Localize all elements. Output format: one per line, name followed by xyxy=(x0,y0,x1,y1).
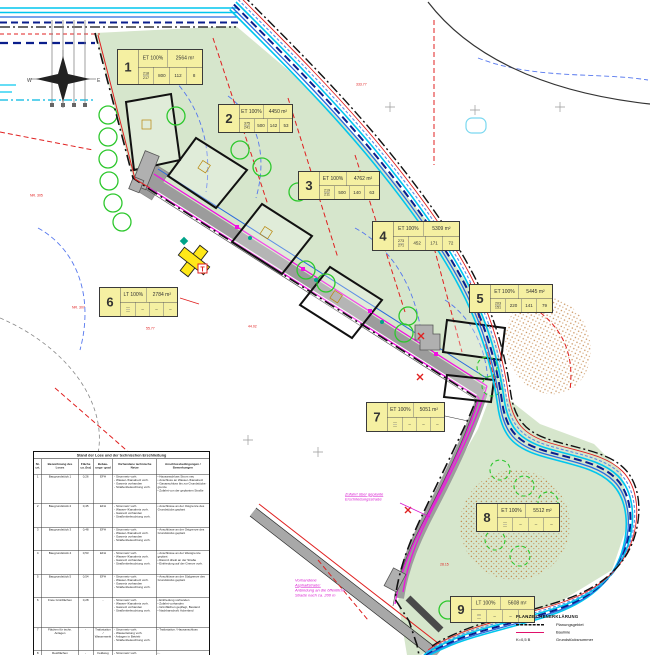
survey-cross-icon xyxy=(385,102,395,112)
transformer-marker: T xyxy=(198,264,207,274)
table-cell: Freie Grünflächen xyxy=(42,598,79,627)
table-cell: Stromnetz vorh.Wasser-/Kanalnetz vorh.Ga… xyxy=(113,475,156,504)
table-cell: Feldweg (unbefestigt) xyxy=(93,651,113,655)
table-note-line: Zufahrt von der geplanten Straße xyxy=(158,490,208,494)
legend-item: Baulinie xyxy=(516,629,650,637)
table-cell: Hausanschluss Strom neuAnschluss an Wass… xyxy=(157,475,209,504)
annotation-line: Erschließungsstraße xyxy=(345,497,440,502)
utility-marker-icon xyxy=(314,278,318,282)
table-cell: Stromnetz vorh.Wasser-/Kanalnetz vorh.Ga… xyxy=(113,598,156,627)
annotation-line: Straße nach ca. 200 m xyxy=(295,593,410,598)
table-cell: 6 xyxy=(34,598,42,627)
table-cell: 1 xyxy=(34,475,42,504)
table-desc-line: Straßenbeleuchtung vorh. xyxy=(114,539,155,543)
legend-item-label: Grundstücksnummer xyxy=(556,638,593,643)
table-note-line: Gasanschluss bis zur Grundstücks- grenze xyxy=(158,483,208,490)
compass-west-label: W xyxy=(27,78,32,84)
table-cell: Anschlüsse an der Ostgrenze des Grundstü… xyxy=(157,528,209,551)
table-note-line: Anschlüsse an der Ostgrenze des Grundstü… xyxy=(158,505,208,512)
tree-icon xyxy=(113,213,131,231)
baseline-line-icon xyxy=(516,632,544,633)
table-row: 1 Baugrundstück 1 0,26 EFH Stromnetz vor… xyxy=(34,475,209,505)
table-header-cell: Nr. crt. xyxy=(34,459,42,474)
utility-marker-icon xyxy=(248,236,252,240)
utility-marker-icon xyxy=(380,320,384,324)
table-header-cell: Fläche ca. (ha) xyxy=(79,459,94,474)
table-cell: Anschlüsse an der Westgrenze geplantRaco… xyxy=(157,551,209,574)
building-outline xyxy=(444,375,494,402)
division-line xyxy=(0,132,93,150)
map-legend: PLANZEICHENERKLÄRUNG Planungsgebiet Baul… xyxy=(516,614,650,655)
tree-icon xyxy=(104,194,122,212)
compass-east-label: E xyxy=(97,78,101,84)
leader-line xyxy=(445,416,468,421)
table-cell: - xyxy=(79,651,94,655)
table-desc-line: Straßenbeleuchtung vorh. xyxy=(114,610,155,614)
table-cell: 0,28 xyxy=(79,598,94,627)
access-annotation: Zufahrt über geplante Erschließungsstraß… xyxy=(345,492,535,512)
table-cell: EFH xyxy=(93,504,113,527)
table-title: Stand der Lose und der technischen Ersch… xyxy=(34,452,209,459)
table-cell: Einfriedung vorhandenZufahrt vorhandenGr… xyxy=(157,598,209,627)
utility-marker-icon xyxy=(301,267,305,271)
table-cell: 5 xyxy=(34,575,42,598)
survey-cross-icon xyxy=(555,102,565,112)
north-arrow: W E xyxy=(27,50,101,108)
legend-item: K=0,5 B Grundstücksnummer xyxy=(516,636,650,644)
table-cell: Flächen für techn. Anlagen xyxy=(42,628,79,651)
hydrant-cross-symbol xyxy=(172,239,217,284)
table-row: 5 Baugrundstück 5 0,54 EFH Stromnetz vor… xyxy=(34,575,209,599)
table-cell: Anschlüsse an der Südgrenze des Grundstü… xyxy=(157,575,209,598)
legend-title: PLANZEICHENERKLÄRUNG xyxy=(516,614,650,619)
table-note-line: Anschlüsse an der Ostgrenze des Grundstü… xyxy=(158,529,208,536)
table-cell: Baugrundstück 2 xyxy=(42,504,79,527)
table-cell: Anschlüsse an der Ostgrenze des Grundstü… xyxy=(157,504,209,527)
table-cell: Trafostation / Wasserwerk xyxy=(93,628,113,651)
survey-cross-icon xyxy=(243,435,253,445)
table-header-cell: Vorhandene technische Netze xyxy=(113,459,156,474)
table-header-cell: Bebau- ungs- grad xyxy=(93,459,113,474)
survey-cross-icon xyxy=(470,105,480,115)
tree-icon xyxy=(100,172,118,190)
pond-outline xyxy=(466,118,486,133)
table-desc-line: Straßenbeleuchtung vorh. xyxy=(114,639,155,643)
table-note-line: Nachbarschaft: Ackerland xyxy=(158,610,208,614)
table-cell: 0,45 xyxy=(79,504,94,527)
table-desc-line: Straßenbeleuchtung vorh. xyxy=(114,563,155,567)
table-cell: Stromnetz vorh.Wasser-/Kanalnetz vorh.Ga… xyxy=(113,575,156,598)
table-cell: Restflächen xyxy=(42,651,79,655)
table-cell: Baugrundstück 5 xyxy=(42,575,79,598)
table-cell: EFH xyxy=(93,551,113,574)
table-desc-line: Straßenbeleuchtung vorh. xyxy=(114,486,155,490)
table-cell: 0,53 xyxy=(79,551,94,574)
table-cell: 0,54 xyxy=(79,575,94,598)
table-cell: Baugrundstück 3 xyxy=(42,528,79,551)
site-plan-page: W E T 1 ET 100% 2564 m² 218217 xyxy=(0,0,650,655)
legend-item-label: Planungsgebiet xyxy=(556,623,584,628)
table-desc-line: Straßenbeleuchtung vorh. xyxy=(114,516,155,520)
table-cell: Stromnetz vorh.Wasserleitung vorh.Anlage… xyxy=(113,628,156,651)
valve-diamond-icon xyxy=(180,237,188,245)
legend-item: Planungsgebiet xyxy=(516,621,650,629)
legend-symbol-text: K=0,5 B xyxy=(516,638,530,643)
table-cell: EFH xyxy=(93,575,113,598)
table-cell: 3 xyxy=(34,528,42,551)
table-row: 3 Baugrundstück 3 0,48 EFH Stromnetz vor… xyxy=(34,528,209,552)
legend-item-label: Baulinie xyxy=(556,630,570,635)
table-cell: - xyxy=(79,628,94,651)
table-cell: 2 xyxy=(34,504,42,527)
lots-table: Stand der Lose und der technischen Ersch… xyxy=(33,451,387,655)
table-row: 2 Baugrundstück 2 0,45 EFH Stromnetz vor… xyxy=(34,504,209,528)
table-header-cell: Bezeichnung des Loses xyxy=(42,459,79,474)
utility-poles xyxy=(50,20,87,107)
contour-line xyxy=(478,58,648,80)
table-row: 4 Baugrundstück 4 0,53 EFH Stromnetz vor… xyxy=(34,551,209,575)
table-cell: 0,26 xyxy=(79,475,94,504)
table-note-line: Trafostation / Hausanschluss xyxy=(158,629,208,633)
table-cell: - xyxy=(93,598,113,627)
field-boundary-dashed xyxy=(0,318,99,462)
boundary-line-icon xyxy=(516,624,544,626)
table-row: 7 Flächen für techn. Anlagen - Trafostat… xyxy=(34,628,209,652)
table-cell: 7 xyxy=(34,628,42,651)
x-mark-icon xyxy=(417,374,423,380)
utility-marker-icon xyxy=(434,352,438,356)
table-cell: EFH xyxy=(93,528,113,551)
table-cell: Baugrundstück 4 xyxy=(42,551,79,574)
table-cell: 0,48 xyxy=(79,528,94,551)
table-cell: Stromnetz vorh.Wasser-/Kanalnetz vorh.Ga… xyxy=(113,551,156,574)
table-note-line: Einfriedung auf der Grenze vorh. xyxy=(158,563,208,567)
table-cell: 8 xyxy=(34,651,42,655)
tree-icon xyxy=(99,128,117,146)
x-mark-icon xyxy=(451,243,457,249)
table-cell: Baugrundstück 1 xyxy=(42,475,79,504)
table-header-cell: Anschlussbedingungen / Bemerkungen xyxy=(157,459,209,474)
table-cell: - xyxy=(157,651,209,655)
road-note-annotation: Vorhandene Asphaltstraße: Anbindung an d… xyxy=(295,578,525,618)
contour-line xyxy=(38,228,85,350)
table-header-row: Nr. crt.Bezeichnung des LosesFläche ca. … xyxy=(34,459,209,475)
table-note-line: Anschlüsse an der Westgrenze geplant xyxy=(158,552,208,559)
table-note-line: Anschlüsse an der Südgrenze des Grundstü… xyxy=(158,576,208,583)
terrain-contour xyxy=(428,2,650,104)
table-row: 6 Freie Grünflächen 0,28 - Stromnetz vor… xyxy=(34,598,209,628)
table-cell: EFH xyxy=(93,475,113,504)
table-cell: Stromnetz vorh.Wasser-/Kanalnetz vorh.Ga… xyxy=(113,651,156,655)
table-cell: 4 xyxy=(34,551,42,574)
table-desc-line: Straßenbeleuchtung vorh. xyxy=(114,586,155,590)
utility-marker-icon xyxy=(368,309,372,313)
utility-marker-icon xyxy=(235,225,239,229)
table-cell: Stromnetz vorh.Wasser-/Kanalnetz vorh.Ga… xyxy=(113,528,156,551)
svg-text:T: T xyxy=(200,267,205,274)
tree-icon xyxy=(99,150,117,168)
table-row: 8 Restflächen - Feldweg (unbefestigt) St… xyxy=(34,651,209,655)
table-cell: Stromnetz vorh.Wasser-/Kanalnetz vorh.Ga… xyxy=(113,504,156,527)
leader-line xyxy=(180,298,199,304)
table-cell: Trafostation / Hausanschluss xyxy=(157,628,209,651)
